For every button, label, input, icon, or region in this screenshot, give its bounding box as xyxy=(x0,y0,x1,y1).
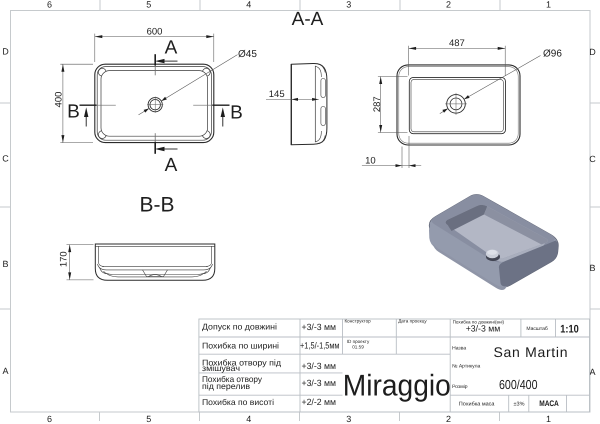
svg-text:Ø96: Ø96 xyxy=(543,49,562,60)
svg-text:+3/-3 мм: +3/-3 мм xyxy=(302,322,337,332)
svg-text:San Martin: San Martin xyxy=(494,344,568,360)
svg-text:4: 4 xyxy=(246,0,251,10)
svg-text:Назва: Назва xyxy=(452,346,466,352)
svg-text:D: D xyxy=(589,47,596,57)
svg-text:Масштаб: Масштаб xyxy=(526,326,548,332)
svg-text:B: B xyxy=(230,103,243,124)
svg-text:Розмір: Розмір xyxy=(452,384,468,390)
svg-text:600/400: 600/400 xyxy=(499,377,538,392)
svg-text:2: 2 xyxy=(446,0,451,10)
svg-text:A-A: A-A xyxy=(292,9,324,30)
svg-text:±3%: ±3% xyxy=(514,401,525,407)
svg-text:B: B xyxy=(2,259,8,269)
svg-text:Похибка по ширині: Похибка по ширині xyxy=(202,340,279,350)
svg-text:C: C xyxy=(589,154,596,164)
svg-text:3: 3 xyxy=(346,0,351,10)
svg-text:Допуск по довжині: Допуск по довжині xyxy=(202,322,277,332)
svg-text:5: 5 xyxy=(146,0,151,10)
svg-text:A: A xyxy=(2,366,8,376)
svg-text:+3/-3 мм: +3/-3 мм xyxy=(466,324,501,334)
svg-text:01.59: 01.59 xyxy=(352,345,364,350)
svg-text:10: 10 xyxy=(365,155,376,166)
svg-text:3: 3 xyxy=(346,414,351,424)
svg-text:6: 6 xyxy=(47,0,52,10)
svg-text:6: 6 xyxy=(47,414,52,424)
svg-text:2: 2 xyxy=(446,414,451,424)
svg-text:400: 400 xyxy=(53,92,64,108)
svg-text:+3/-3 мм: +3/-3 мм xyxy=(302,361,337,371)
svg-text:C: C xyxy=(2,154,9,164)
svg-text:5: 5 xyxy=(146,414,151,424)
svg-text:B: B xyxy=(589,263,595,273)
svg-text:A: A xyxy=(165,155,178,176)
svg-text:Дата проекцу: Дата проекцу xyxy=(398,318,427,323)
svg-text:145: 145 xyxy=(269,89,285,100)
svg-text:Конструктор: Конструктор xyxy=(345,318,372,323)
svg-text:4: 4 xyxy=(246,414,251,424)
svg-text:+1,5/-1,5мм: +1,5/-1,5мм xyxy=(300,341,340,351)
svg-text:під перелив: під перелив xyxy=(202,381,251,391)
svg-text:170: 170 xyxy=(59,251,70,267)
svg-text:+3/-3 мм: +3/-3 мм xyxy=(302,378,337,388)
svg-text:1: 1 xyxy=(546,414,551,424)
svg-text:287: 287 xyxy=(372,96,383,112)
svg-text:МАСА: МАСА xyxy=(539,399,559,408)
svg-text:Miraggio: Miraggio xyxy=(343,369,451,402)
svg-text:1:10: 1:10 xyxy=(560,324,579,336)
svg-text:B: B xyxy=(67,102,80,123)
svg-text:A: A xyxy=(165,38,178,59)
svg-text:ID проекту: ID проекту xyxy=(347,339,370,344)
svg-text:змішувач: змішувач xyxy=(202,363,240,373)
svg-text:Похибка маса: Похибка маса xyxy=(459,400,496,407)
svg-text:487: 487 xyxy=(449,38,465,49)
svg-text:Похибка по висоті: Похибка по висоті xyxy=(202,397,274,407)
svg-text:Ø45: Ø45 xyxy=(238,49,257,60)
svg-text:1: 1 xyxy=(546,0,551,10)
svg-text:B-B: B-B xyxy=(139,194,174,217)
svg-text:+2/-2 мм: +2/-2 мм xyxy=(302,397,337,407)
svg-text:№ Артикула: № Артикула xyxy=(452,364,480,370)
svg-text:A: A xyxy=(589,367,595,377)
svg-text:600: 600 xyxy=(147,26,163,37)
svg-text:D: D xyxy=(2,47,9,57)
